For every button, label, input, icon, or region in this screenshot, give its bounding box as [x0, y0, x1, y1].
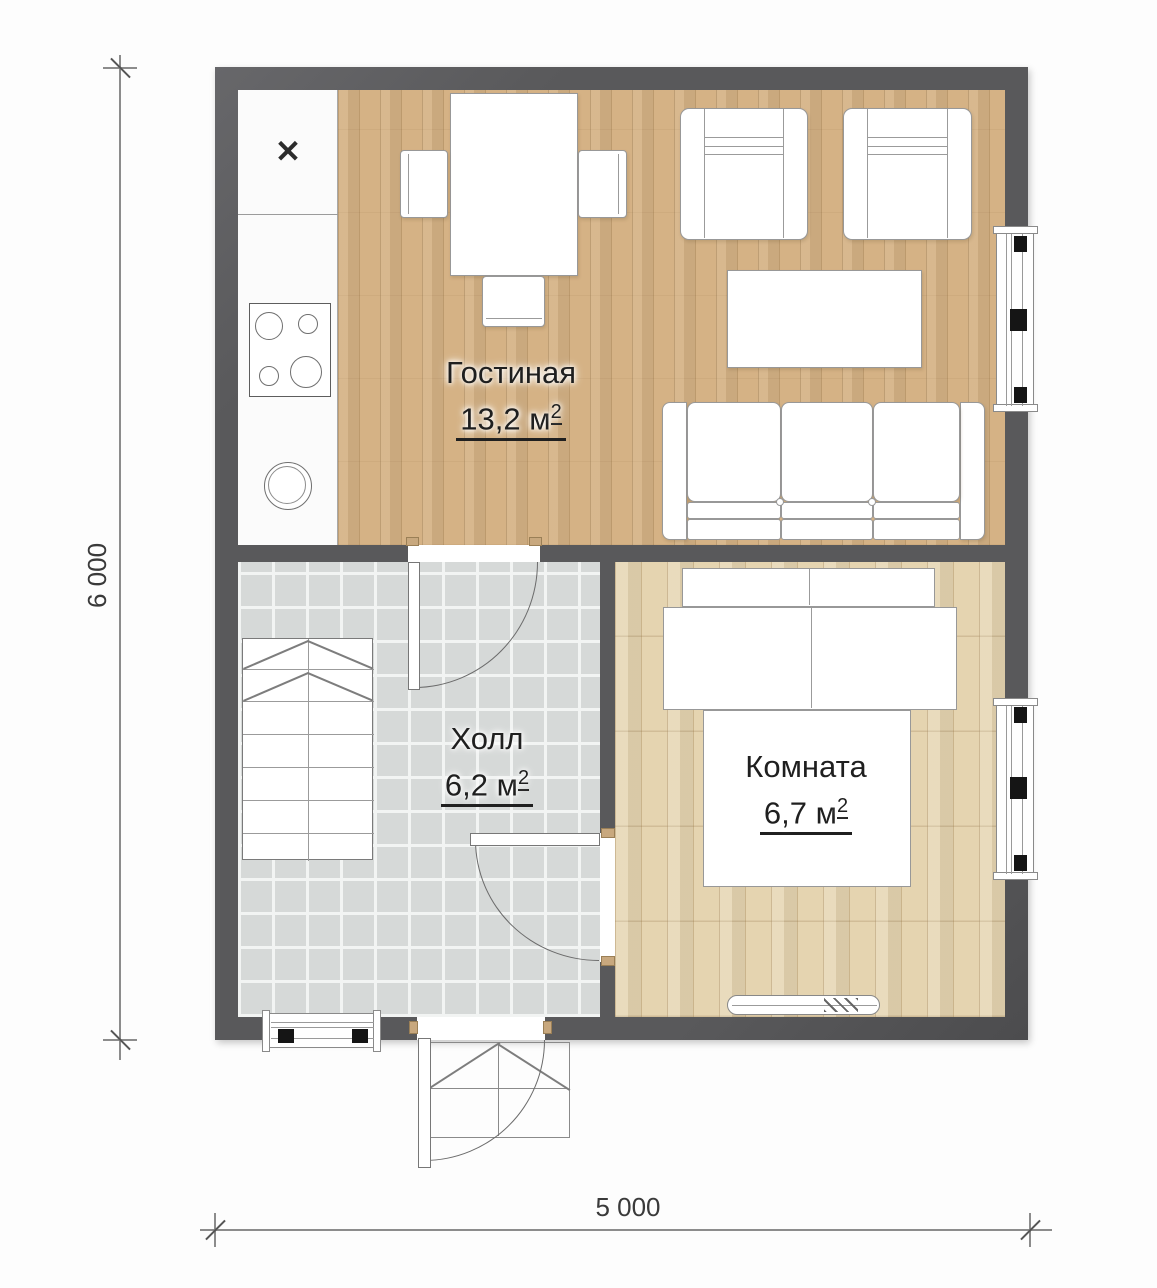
radiator-hatch [824, 998, 858, 1012]
window-bedroom [996, 700, 1034, 878]
bedroom-area-sup: 2 [837, 795, 848, 819]
coffee-table [727, 270, 922, 368]
backrest-line [868, 137, 948, 138]
staircase [242, 638, 373, 860]
entrance-door-swing [424, 1040, 545, 1161]
armchair-left [680, 108, 808, 240]
window-latch [1014, 707, 1027, 723]
door-jamb [601, 828, 615, 838]
window-cap [993, 698, 1038, 706]
living-room-area-sup: 2 [551, 401, 562, 425]
dining-chair-right [578, 150, 627, 218]
window-latch [1014, 236, 1027, 252]
sofa [662, 402, 985, 540]
sofa-joint-dot [776, 498, 784, 506]
dimension-label-vertical: 6 000 [82, 518, 116, 633]
bedroom-area-value: 6,7 м [764, 795, 837, 830]
dimension-line-horizontal [200, 1229, 1052, 1231]
backrest-line [705, 146, 784, 147]
living-room-area: 13,2 м2 [406, 395, 616, 441]
bedroom-name: Комната [701, 750, 911, 784]
sofa-back-cushion [687, 519, 781, 540]
living-room-label: Гостиная 13,2 м2 [406, 356, 616, 441]
burner [290, 356, 322, 388]
interior-wall-vertical-upper [600, 562, 615, 833]
stair-break-line [307, 640, 373, 669]
stair-break-line [243, 640, 309, 669]
interior-wall-vertical-lower [600, 962, 615, 1017]
living-room-area-value: 13,2 м [460, 401, 550, 436]
backrest-line [705, 137, 784, 138]
sofa-back-cushion [781, 502, 873, 519]
doorway-threshold-hall-bedroom [600, 833, 615, 962]
window-cap [993, 226, 1038, 234]
chair-back-line [408, 154, 409, 214]
chair-back-line [618, 154, 619, 214]
armrest-line [704, 109, 705, 238]
bedroom-label: Комната 6,7 м2 [701, 750, 911, 835]
window-hall [265, 1013, 378, 1048]
armrest-line [947, 109, 948, 238]
dining-chair-left [400, 150, 448, 218]
interior-wall-horizontal-right [540, 545, 1005, 562]
bed-body [663, 607, 957, 710]
window-mullion [271, 1027, 374, 1028]
seat-line [705, 154, 784, 155]
sofa-joint-dot [868, 498, 876, 506]
armchair-right [843, 108, 972, 240]
bed-headboard [682, 568, 935, 607]
seat-line [868, 154, 948, 155]
window-cap [993, 404, 1038, 412]
sofa-armrest [960, 402, 985, 540]
window-cap [262, 1010, 270, 1052]
burner [298, 314, 318, 334]
sofa-back-cushion [873, 519, 960, 540]
dimension-label-horizontal: 5 000 [558, 1192, 698, 1223]
kitchen-counter-divider [238, 214, 338, 215]
dining-chair-bottom [482, 276, 545, 327]
stair-break-line [307, 672, 373, 701]
sofa-back-cushion [873, 502, 960, 519]
living-room-name: Гостиная [406, 356, 616, 390]
entrance-door-leaf [418, 1038, 431, 1168]
window-mullion [271, 1022, 374, 1023]
window-latch [352, 1029, 368, 1043]
hall-area-sup: 2 [518, 767, 529, 791]
chair-back-line [486, 318, 542, 319]
sofa-armrest [662, 402, 687, 540]
bed-center-line [811, 608, 812, 708]
kitchen-x-symbol: ✕ [266, 134, 310, 170]
window-living-room [996, 228, 1034, 410]
radiator [727, 995, 880, 1015]
window-cap [373, 1010, 381, 1052]
hall-bedroom-door-leaf [470, 833, 600, 846]
kitchen-sink [264, 462, 312, 510]
sofa-cushion [687, 402, 781, 502]
window-mullion [1006, 706, 1007, 874]
window-mullion [1006, 234, 1007, 406]
sofa-cushion [781, 402, 873, 502]
sofa-back-cushion [687, 502, 781, 519]
bed-center-line [809, 569, 810, 605]
burner [259, 366, 279, 386]
floor-plan-canvas: ✕ [0, 0, 1157, 1288]
hall-area: 6,2 м2 [382, 761, 592, 807]
sofa-back-cushion [781, 519, 873, 540]
door-jamb [529, 537, 542, 546]
dining-table [450, 93, 578, 276]
armrest-line [867, 109, 868, 238]
burner [255, 312, 283, 340]
backrest-line [868, 146, 948, 147]
living-hall-door-leaf [408, 562, 420, 690]
sink-inner-ring [268, 466, 306, 504]
door-jamb [601, 956, 615, 966]
window-cap [993, 872, 1038, 880]
armrest-line [783, 109, 784, 238]
interior-wall-horizontal-left [238, 545, 408, 562]
door-jamb [406, 537, 419, 546]
dimension-line-vertical [119, 55, 121, 1060]
hall-name: Холл [382, 722, 592, 756]
bedroom-area: 6,7 м2 [701, 789, 911, 835]
hall-area-value: 6,2 м [445, 767, 518, 802]
entrance-threshold [417, 1017, 545, 1040]
stair-break-line [243, 672, 309, 701]
sofa-cushion [873, 402, 960, 502]
stove [249, 303, 331, 397]
window-latch [278, 1029, 294, 1043]
door-jamb [409, 1021, 418, 1034]
window-latch [1014, 387, 1027, 403]
hall-label: Холл 6,2 м2 [382, 722, 592, 807]
window-latch [1014, 855, 1027, 871]
window-latch [1010, 777, 1027, 799]
doorway-threshold-living-hall [408, 545, 540, 562]
window-latch [1010, 309, 1027, 331]
door-jamb [543, 1021, 552, 1034]
